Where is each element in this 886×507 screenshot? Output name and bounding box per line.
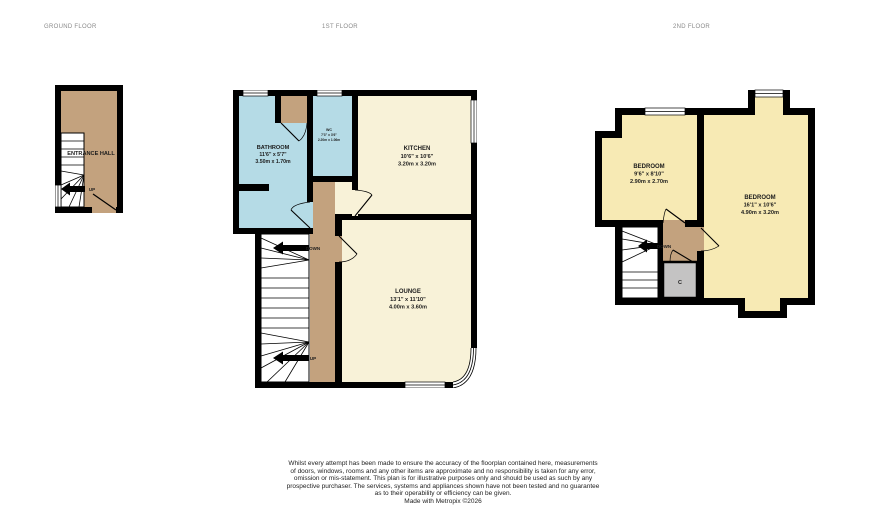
- svg-text:11'6" x 5'7": 11'6" x 5'7": [259, 152, 287, 158]
- floorplan-page: GROUND FLOOR 1ST FLOOR 2ND FLOOR UP ENTR…: [0, 0, 886, 507]
- cupboard-label: C: [678, 280, 682, 286]
- kitchen-door-gap: [352, 190, 358, 216]
- disclaimer-line: of doors, windows, rooms and any other i…: [0, 468, 886, 476]
- metropix-credit: Made with Metropix ©2026: [0, 498, 886, 506]
- bathroom-door-gap: [307, 202, 313, 228]
- down-label: DOWN: [306, 246, 320, 251]
- svg-text:2.90m x 2.70m: 2.90m x 2.70m: [630, 179, 668, 185]
- svg-text:2.20m x 1.06m: 2.20m x 1.06m: [318, 138, 340, 142]
- ground-floor-label: GROUND FLOOR: [44, 24, 97, 30]
- ground-left-window: [55, 185, 61, 207]
- svg-text:3.50m x 1.70m: 3.50m x 1.70m: [255, 159, 291, 165]
- svg-text:3.20m x 3.20m: 3.20m x 3.20m: [398, 162, 436, 168]
- first-floor-label: 1ST FLOOR: [322, 24, 358, 30]
- disclaimer-line: Whilst every attempt has been made to en…: [0, 460, 886, 468]
- entrance-hall-label: ENTRANCE HALL: [67, 151, 115, 157]
- kitchen-label: KITCHEN 10'6" x 10'6" 3.20m x 3.20m: [398, 146, 436, 168]
- bedroom-large-bottom-bump: [745, 291, 780, 311]
- down-label: DOWN: [657, 244, 671, 249]
- up-label: UP: [310, 356, 316, 361]
- top-alcove: [281, 96, 307, 123]
- svg-text:16'1" x 10'6": 16'1" x 10'6": [744, 203, 777, 209]
- ground-stairs: [61, 133, 84, 207]
- svg-text:BEDROOM: BEDROOM: [633, 164, 664, 170]
- svg-text:LOUNGE: LOUNGE: [395, 289, 421, 295]
- svg-text:13'1" x 11'10": 13'1" x 11'10": [390, 297, 426, 303]
- second-floor-plan: DOWN C BEDROOM 9'6" x 8'10" 2.90m x 2.70…: [593, 88, 819, 323]
- first-floor-plan: DOWN UP BATHROOM 11'6" x 5'7": [233, 90, 477, 388]
- svg-text:7'3" x 3'6": 7'3" x 3'6": [321, 133, 337, 137]
- svg-text:9'6" x 8'10": 9'6" x 8'10": [634, 172, 664, 178]
- ground-floor-plan: UP ENTRANCE HALL: [55, 85, 123, 213]
- svg-text:KITCHEN: KITCHEN: [404, 146, 431, 152]
- bedroom-large-top-bump: [755, 97, 783, 115]
- disclaimer-line: prospective purchaser. The services, sys…: [0, 483, 886, 491]
- disclaimer-line: omission or mis-statement. This plan is …: [0, 475, 886, 483]
- svg-text:4.90m x 3.20m: 4.90m x 3.20m: [741, 210, 779, 216]
- kitchen-entry-nook: [335, 182, 352, 214]
- disclaimer-line: as to their operability or efficiency ca…: [0, 490, 886, 498]
- up-label: UP: [89, 187, 95, 192]
- landing-corridor: [310, 182, 335, 382]
- svg-text:10'6" x 10'6": 10'6" x 10'6": [401, 154, 434, 160]
- svg-text:4.00m x 3.60m: 4.00m x 3.60m: [389, 305, 427, 311]
- lounge-door-gap: [335, 236, 342, 262]
- bedroom-small-label: BEDROOM 9'6" x 8'10" 2.90m x 2.70m: [630, 164, 668, 185]
- second-floor-label: 2ND FLOOR: [673, 24, 710, 30]
- svg-text:WC: WC: [326, 128, 332, 132]
- disclaimer: Whilst every attempt has been made to en…: [0, 460, 886, 506]
- bedroom-large-label: BEDROOM 16'1" x 10'6" 4.90m x 3.20m: [741, 195, 779, 216]
- bathroom-label: BATHROOM 11'6" x 5'7" 3.50m x 1.70m: [255, 145, 291, 165]
- svg-text:BEDROOM: BEDROOM: [744, 195, 775, 201]
- svg-text:BATHROOM: BATHROOM: [257, 145, 290, 151]
- second-floor-stairs: [622, 227, 658, 298]
